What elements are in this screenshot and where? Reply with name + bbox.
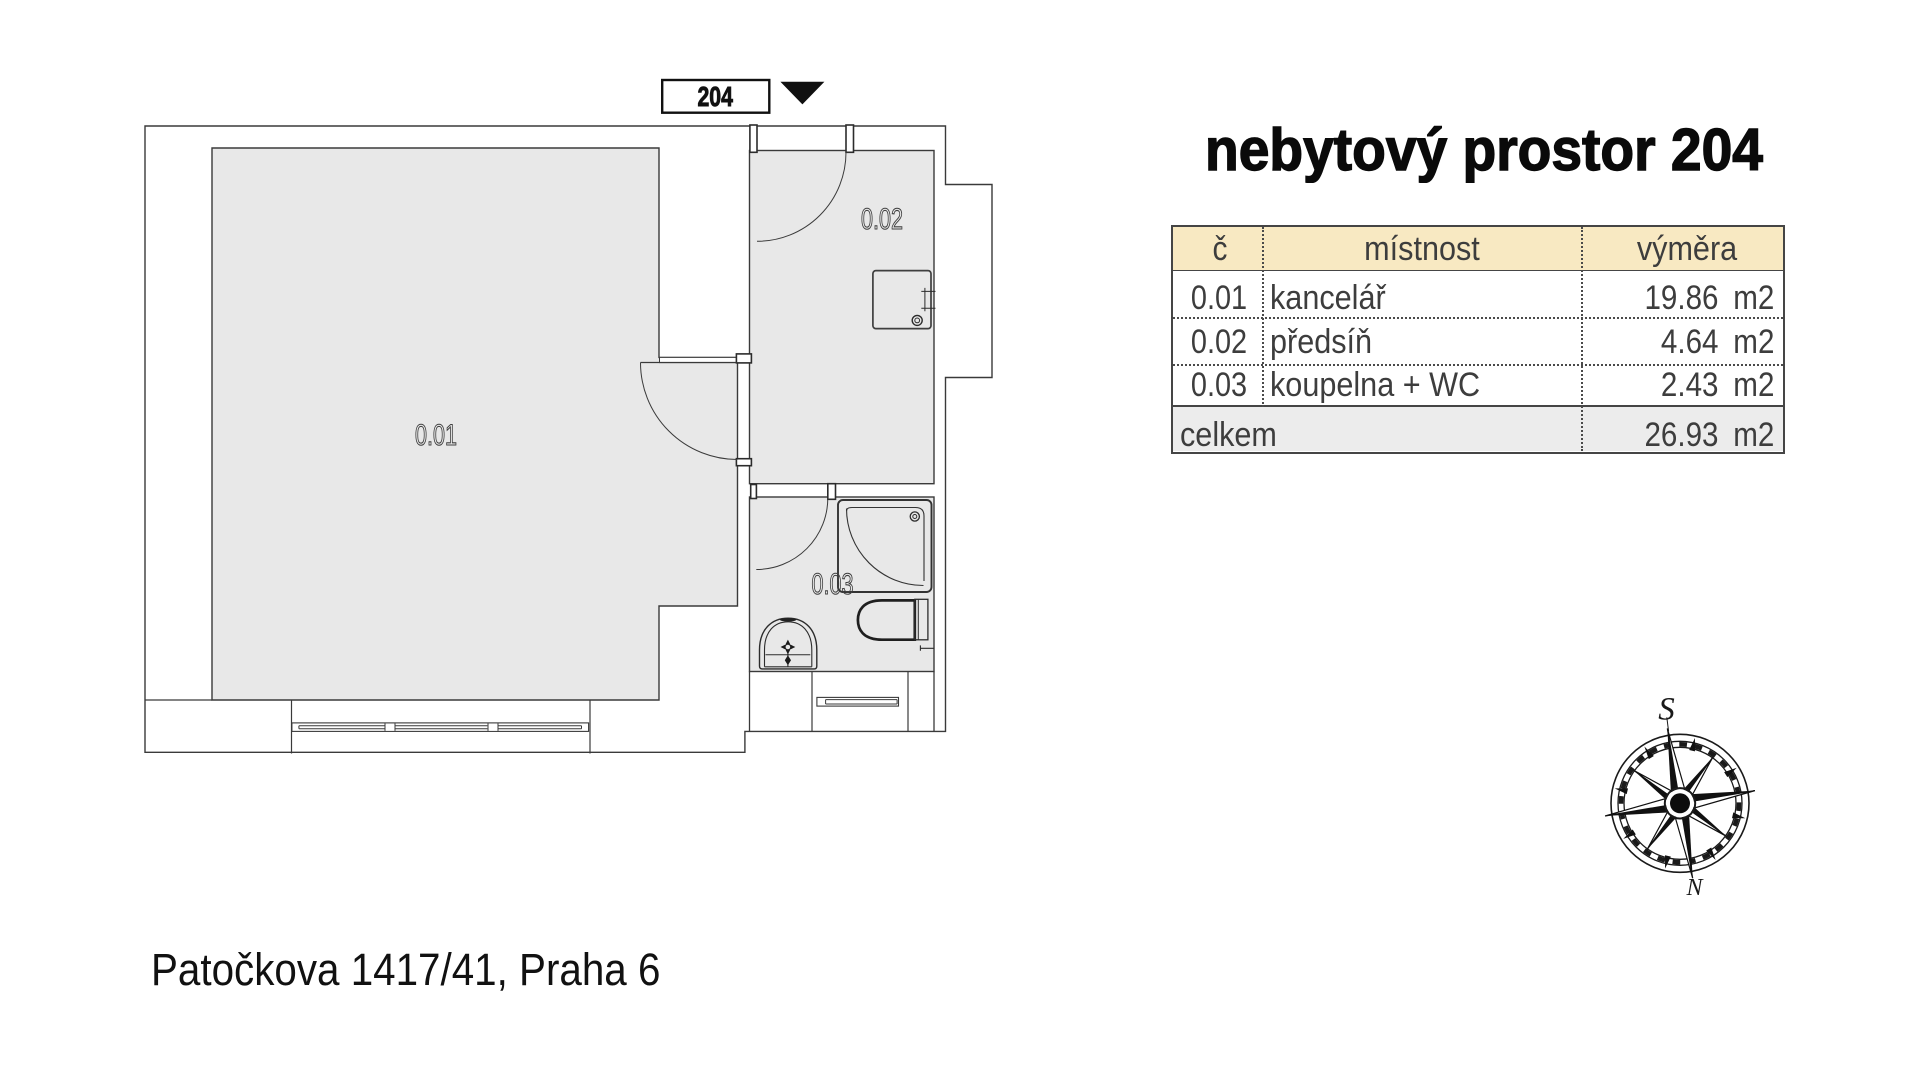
svg-text:N: N bbox=[1685, 875, 1704, 901]
svg-text:0.03: 0.03 bbox=[811, 566, 853, 600]
svg-text:S: S bbox=[1658, 691, 1675, 727]
svg-text:0.01: 0.01 bbox=[415, 417, 457, 451]
svg-text:0.02: 0.02 bbox=[861, 201, 903, 235]
svg-text:204: 204 bbox=[697, 81, 733, 113]
